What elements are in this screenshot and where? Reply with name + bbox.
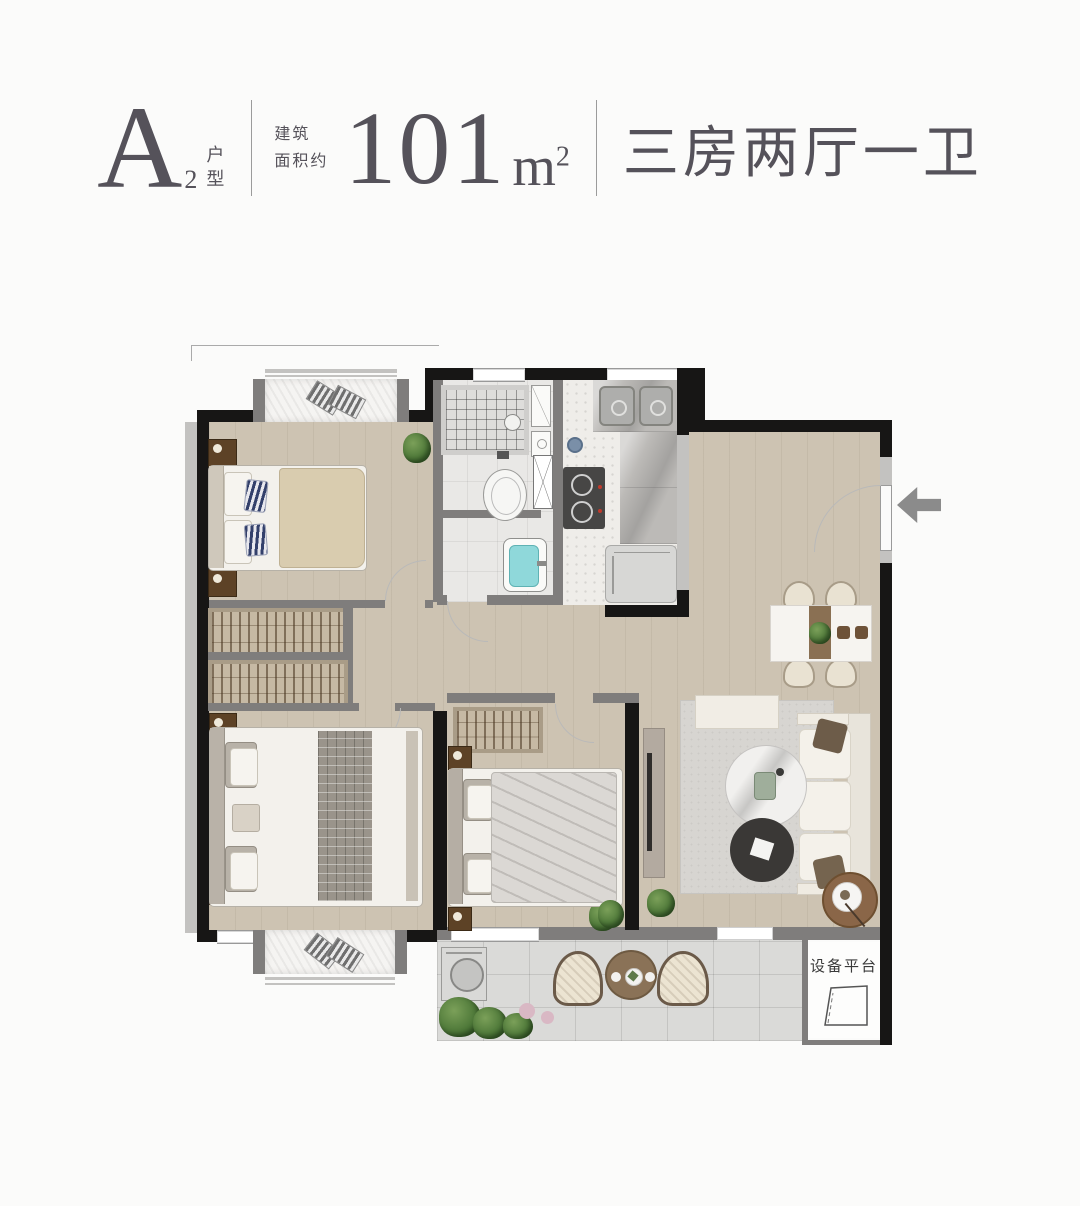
wall-segment <box>425 600 433 608</box>
outline-line <box>191 345 439 346</box>
floor-drain <box>497 451 509 459</box>
shower-head <box>504 414 521 431</box>
blanket <box>491 772 617 903</box>
area-unit-exponent: 2 <box>556 142 570 173</box>
floor-plan: 设备平台 <box>185 355 945 1055</box>
washer-drum <box>450 958 484 992</box>
sofa <box>797 713 871 895</box>
wall-segment <box>677 435 689 590</box>
sink-drain <box>650 400 666 416</box>
nightstand <box>208 569 237 597</box>
napkin <box>750 837 775 860</box>
headboard <box>449 769 463 904</box>
wall-segment <box>395 930 407 974</box>
wall-segment <box>447 693 555 703</box>
table-decor <box>754 772 776 800</box>
bed <box>208 465 367 571</box>
blanket <box>318 731 372 901</box>
fridge <box>605 545 677 603</box>
bay-window-sill <box>265 375 397 377</box>
plate-item <box>840 890 850 900</box>
tv <box>647 753 652 851</box>
balcony-table <box>605 950 657 1000</box>
wall-segment <box>395 703 435 711</box>
footboard <box>406 731 418 901</box>
balcony-door-opening <box>717 927 773 940</box>
plant <box>473 1007 507 1039</box>
table-plant <box>809 622 831 644</box>
wall-segment <box>487 595 560 605</box>
shower <box>441 385 529 455</box>
cup <box>611 972 621 982</box>
cushion <box>326 937 365 973</box>
flower <box>519 1003 535 1019</box>
headboard <box>209 466 224 568</box>
wall-segment <box>605 605 689 617</box>
page: { "header": { "unit_letter": "A", "unit_… <box>0 0 1080 1206</box>
blanket <box>279 468 365 568</box>
wall-segment <box>705 420 892 432</box>
bay-window-sill <box>265 983 395 985</box>
stove-knob <box>598 509 602 513</box>
area-label-line2: 面积约 <box>274 148 328 175</box>
entry-arrow-icon <box>897 487 941 523</box>
bed <box>448 768 623 907</box>
bay-window-sill <box>265 977 395 980</box>
bench <box>695 695 779 729</box>
layout-description: 三房两厅一卫 <box>623 108 983 189</box>
entry-door <box>880 485 892 551</box>
wall-segment <box>208 703 359 711</box>
bath-cabinet <box>531 385 551 427</box>
wall-segment <box>433 711 447 930</box>
pillow <box>230 748 258 786</box>
plant <box>403 433 431 463</box>
wall-segment <box>773 927 880 940</box>
side-table <box>822 872 878 928</box>
wall-segment <box>197 930 217 942</box>
stove-knob <box>598 485 602 489</box>
pillow <box>244 523 269 557</box>
plant <box>647 889 675 917</box>
wall-segment <box>525 368 607 380</box>
washbasin <box>503 538 547 592</box>
nightstand <box>448 907 472 931</box>
bed <box>209 727 423 907</box>
area-label-line1: 建筑 <box>274 121 328 148</box>
dining-chair <box>825 658 857 688</box>
bay-window-sill <box>265 369 397 373</box>
toilet <box>483 469 527 521</box>
window <box>473 368 525 382</box>
cabinet-knob <box>537 439 547 449</box>
plant <box>598 900 624 928</box>
area-label: 建筑 面积约 <box>274 121 328 175</box>
pillow <box>230 852 258 890</box>
burner <box>571 474 593 496</box>
pillow <box>232 804 260 832</box>
pillow <box>243 479 268 513</box>
headboard <box>210 728 225 904</box>
area-value-block: 101 m2 <box>344 107 570 190</box>
basin-bowl <box>509 545 539 587</box>
wall-segment <box>437 595 447 605</box>
table-decor <box>776 768 784 776</box>
wall-segment <box>253 379 265 422</box>
bay-window-seat <box>265 379 397 422</box>
stove <box>563 467 605 529</box>
equipment-platform-label: 设备平台 <box>806 955 882 973</box>
wall-segment <box>880 551 892 563</box>
pillow <box>467 859 493 893</box>
fridge-handle <box>612 556 614 594</box>
nightstand <box>448 746 472 770</box>
header-divider <box>251 100 252 196</box>
place-setting <box>855 626 868 639</box>
wall-segment <box>553 380 563 605</box>
wall-segment <box>185 422 197 933</box>
wall-segment <box>689 368 705 432</box>
fridge-line <box>614 552 670 553</box>
header-divider <box>596 100 597 196</box>
outline-line <box>191 345 192 361</box>
sink-drain <box>611 400 627 416</box>
washing-machine <box>441 947 487 1001</box>
shaft-box <box>533 455 553 509</box>
equipment-platform-diagram <box>819 983 871 1029</box>
washer-panel <box>446 952 482 954</box>
entry-sidelight <box>880 457 892 485</box>
unit-name: A 2 户型 <box>97 100 227 197</box>
area-unit: m2 <box>512 145 570 190</box>
coffee-table-low <box>730 818 794 882</box>
wall-segment <box>407 930 437 942</box>
wall-segment <box>397 379 409 422</box>
toilet-bowl <box>491 477 521 515</box>
plan-header: A 2 户型 建筑 面积约 101 m2 三房两厅一卫 <box>0 100 1080 197</box>
flower <box>541 1011 554 1024</box>
dining-chair <box>783 658 815 688</box>
wall-segment <box>208 652 353 660</box>
dining-table <box>770 605 872 662</box>
unit-number: 2 <box>184 165 197 195</box>
wall-segment <box>253 930 265 974</box>
bay-window-seat <box>265 930 395 974</box>
wall-segment <box>209 600 385 608</box>
area-value: 101 <box>344 107 506 190</box>
nightstand <box>208 439 237 467</box>
kitchen-sink <box>639 386 673 426</box>
wall-segment <box>593 693 639 703</box>
faucet <box>537 561 546 566</box>
wall-segment <box>625 703 639 930</box>
burner <box>571 501 593 523</box>
wall-segment <box>802 1040 880 1045</box>
bowl <box>567 437 583 453</box>
unit-type-label: 户型 <box>201 145 227 193</box>
wall-segment <box>677 368 689 435</box>
kitchen-counter <box>620 432 677 544</box>
pillow <box>467 785 493 819</box>
kitchen-sink <box>599 386 635 426</box>
bath-cabinet <box>531 431 551 457</box>
coffee-table <box>725 745 807 827</box>
cup <box>645 972 655 982</box>
unit-letter: A <box>97 100 182 197</box>
place-setting <box>837 626 850 639</box>
wall-segment <box>880 432 892 457</box>
